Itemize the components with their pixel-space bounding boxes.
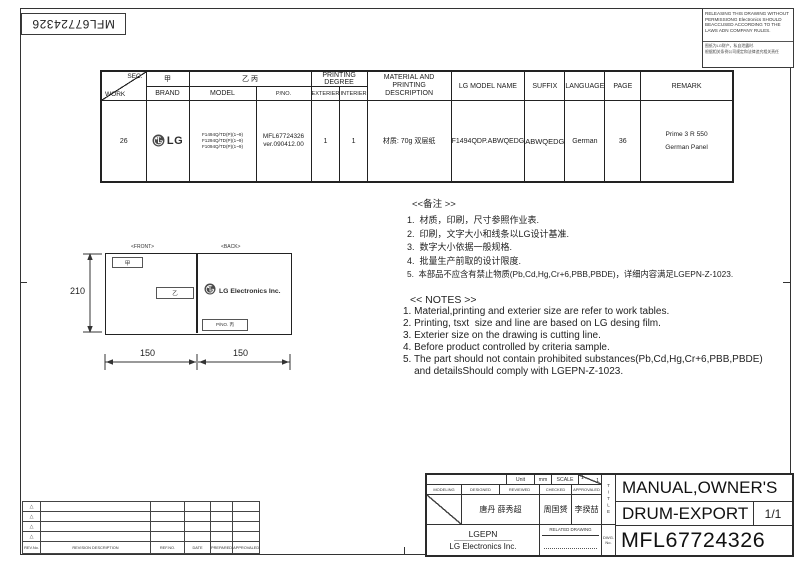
related-drawing-label: RELATED DRAWING xyxy=(540,527,601,532)
revision-row: △ xyxy=(23,522,260,532)
pno-value: MFL67724326 xyxy=(257,133,311,141)
brand-text: LG xyxy=(167,135,183,147)
related-drawing-dotted-line xyxy=(544,548,597,549)
ref-no-header: REF.NO. xyxy=(151,542,185,554)
note-cn-5: 5. 本部品不应含有禁止物质(Pb,Cd,Hg,Cr+6,PBB,PBDE)，详… xyxy=(407,268,733,282)
exterier-header: EXTERIER xyxy=(311,87,340,101)
unit-value: mm xyxy=(535,475,552,485)
right-center-tick xyxy=(783,282,790,283)
scale-denominator: 1 xyxy=(596,478,599,484)
release-notice-english: RELEASING THIS DRAWING WITHOUT PERMISSIO… xyxy=(703,9,793,42)
dim-width-right-label: 150 xyxy=(233,348,248,358)
remark-line1: Prime 3 R 550 xyxy=(641,128,732,141)
notes-en-list: 1. Material,printing and exterier size a… xyxy=(403,306,763,378)
brand-cell: LG xyxy=(146,101,189,183)
revision-row: △ xyxy=(23,512,260,522)
page-header: PAGE xyxy=(605,71,641,101)
date-header: DATE xyxy=(185,542,211,554)
work-sec-diagonal-header: SEC. WORK xyxy=(101,71,146,101)
note-cn-1: 1. 材质，印刷，尺寸参照作业表. xyxy=(407,214,733,228)
titleblock-empty-cell xyxy=(427,475,507,485)
spec-table: SEC. WORK 甲 乙 丙 PRINTING DEGREE MATERIAL… xyxy=(100,70,734,183)
note-en-4: 4. Before product controlled by criteria… xyxy=(403,342,763,354)
remark-line2: German Panel xyxy=(641,141,732,154)
notes-en-title: << NOTES >> xyxy=(410,294,477,306)
checked-label: CHECKED xyxy=(540,485,572,495)
material-header: MATERIAL AND PRINTING DESCRIPTION xyxy=(367,71,451,101)
note-cn-4: 4. 批量生产前取的设计限度. xyxy=(407,255,733,269)
note-en-1: 1. Material,printing and exterier size a… xyxy=(403,306,763,318)
title-vertical-cell: TITLE xyxy=(602,475,616,525)
model-list-cell: F1494Q/TD(P)(1~9) F1294Q/TD(P)(1~9) F109… xyxy=(189,101,256,183)
approvaled-name: 李揆喆 xyxy=(572,495,602,525)
revision-marker-icon: △ xyxy=(23,532,41,542)
scale-numerator: 1 xyxy=(581,475,584,481)
remark-cell: Prime 3 R 550 German Panel xyxy=(641,101,733,183)
revision-table: △ △ △ △ REV.No. REVISION DESCRIPTION REF… xyxy=(22,501,260,554)
brand-cn-header: 甲 xyxy=(146,71,189,87)
release-notice-chinese-line2: 根据相关条例公司规定和法律追究相关责任 xyxy=(705,49,791,55)
pno-cell: MFL67724326 ver.090412.00 xyxy=(256,101,311,183)
dim-width-left-label: 150 xyxy=(140,348,155,358)
revision-row: △ xyxy=(23,532,260,542)
sheet-number: 1/1 xyxy=(754,502,792,526)
notes-cn-title: <<备注 >> xyxy=(412,196,456,210)
designed-name: 唐丹 薛秀超 xyxy=(462,495,540,525)
model-header: MODEL xyxy=(189,87,256,101)
dwg-number: MFL67724326 xyxy=(616,526,792,555)
modeling-signature-cell xyxy=(427,495,462,525)
reviewed-label: REVIEWED xyxy=(500,485,540,495)
interier-value: 1 xyxy=(340,101,367,183)
scale-label: SCALE xyxy=(552,475,579,485)
related-drawing-separator xyxy=(542,535,599,536)
company-cell: LGEPN LG Electronics Inc. xyxy=(427,525,540,555)
work-label: WORK xyxy=(105,91,125,98)
sec-label: SEC. xyxy=(127,73,142,80)
checked-name: 周国赟 xyxy=(540,495,572,525)
rotated-part-number-box: MFL67724326 xyxy=(21,13,126,35)
company-short: LGEPN xyxy=(469,529,498,539)
printing-degree-header: PRINTING DEGREE xyxy=(311,71,367,87)
dwg-label-line2: No. xyxy=(605,540,611,545)
revision-marker-icon: △ xyxy=(23,522,41,532)
suffix-header: SUFFIX xyxy=(525,71,565,101)
title-block: Unit mm SCALE 1 1 MODELING DESIGNED REVI… xyxy=(425,473,794,557)
unit-label: Unit xyxy=(507,475,535,485)
title-vertical-text: TITLE xyxy=(606,483,611,516)
interier-header: INTERIER xyxy=(340,87,367,101)
note-en-2: 2. Printing, tsxt size and line are base… xyxy=(403,318,763,330)
language-header: LANGUAGE xyxy=(565,71,605,101)
lg-model-name-header: LG MODEL NAME xyxy=(451,71,525,101)
material-value: 材质: 70g 双层纸 xyxy=(367,101,451,183)
notes-cn-list: 1. 材质，印刷，尺寸参照作业表. 2. 印刷，文字大小和线条以LG设计基准. … xyxy=(407,214,733,282)
lg-model-name-value: F1494QDP.ABWQEDG xyxy=(451,101,525,183)
dimension-lines xyxy=(70,240,300,380)
note-en-5-cont: and detailsShould comply with LGEPN-Z-10… xyxy=(403,366,763,378)
lg-logo-icon xyxy=(152,134,165,149)
brand-header: BRAND xyxy=(146,87,189,101)
designed-label: DESIGNED xyxy=(462,485,500,495)
revision-description-header: REVISION DESCRIPTION xyxy=(41,542,151,554)
document-title-line2: DRUM-EXPORT xyxy=(616,502,754,526)
approvaled-header: APPROVALED xyxy=(233,542,260,554)
modeling-label: MODELING xyxy=(427,485,462,495)
pno-version: ver.090412.00 xyxy=(257,141,311,149)
note-en-3: 3. Exterier size on the drawing is cutti… xyxy=(403,330,763,342)
remark-header: REMARK xyxy=(641,71,733,101)
rev-no-header: REV.No. xyxy=(23,542,41,554)
language-value: German xyxy=(565,101,605,183)
model-cn-header: 乙 丙 xyxy=(189,71,311,87)
suffix-value: ABWQEDG xyxy=(525,101,565,183)
pno-header: P/NO. xyxy=(256,87,311,101)
scale-value-cell: 1 1 xyxy=(579,475,602,485)
approvaled-label: APPROVALED xyxy=(572,485,602,495)
exterier-value: 1 xyxy=(311,101,340,183)
document-title-line1: MANUAL,OWNER'S xyxy=(616,475,792,502)
company-full: LG Electronics Inc. xyxy=(449,542,516,551)
prepared-header: PREPARED xyxy=(211,542,233,554)
release-notice-chinese: 图纸为LG财产，私自泄露时. 根据相关条例公司规定和法律追究相关责任 xyxy=(703,42,793,56)
revision-row: △ xyxy=(23,502,260,512)
drawing-sheet: MFL67724326 RELEASING THIS DRAWING WITHO… xyxy=(0,0,802,567)
note-en-5: 5. The part should not contain prohibite… xyxy=(403,354,763,366)
company-divider xyxy=(454,540,512,541)
page-value: 36 xyxy=(605,101,641,183)
bottom-center-tick xyxy=(404,547,405,554)
left-center-tick xyxy=(20,282,27,283)
model-3: F1094Q/TD(P)(1~9) xyxy=(190,144,256,150)
rotated-part-number: MFL67724326 xyxy=(32,17,115,31)
revision-marker-icon: △ xyxy=(23,512,41,522)
work-value: 26 xyxy=(101,101,146,183)
dwg-no-label-cell: DWG. No. xyxy=(602,525,616,555)
note-cn-3: 3. 数字大小依据一般规格. xyxy=(407,241,733,255)
note-cn-2: 2. 印刷，文字大小和线条以LG设计基准. xyxy=(407,228,733,242)
related-drawing-cell: RELATED DRAWING xyxy=(540,525,602,555)
dim-height-label: 210 xyxy=(70,286,85,296)
revision-marker-icon: △ xyxy=(23,502,41,512)
release-notice-box: RELEASING THIS DRAWING WITHOUT PERMISSIO… xyxy=(702,8,794,68)
